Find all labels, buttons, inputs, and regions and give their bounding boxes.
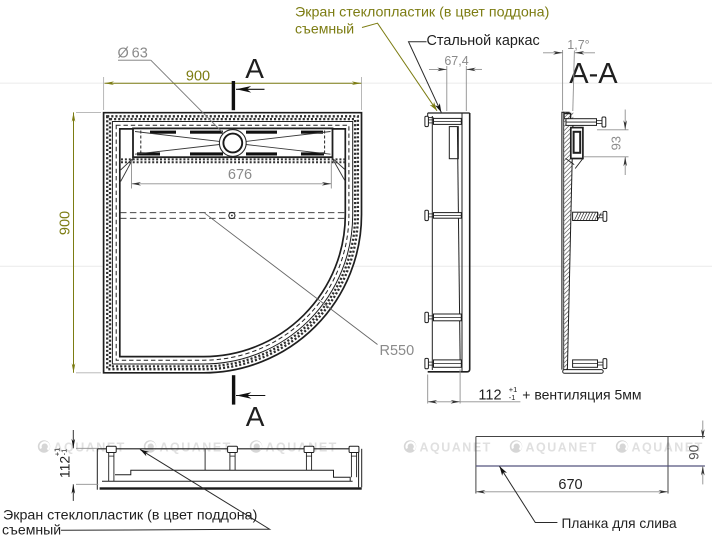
svg-text:Планка для слива: Планка для слива	[562, 516, 677, 531]
svg-text:900: 900	[186, 68, 210, 84]
svg-text:+ вентиляция 5мм: + вентиляция 5мм	[522, 387, 641, 403]
svg-text:90: 90	[686, 445, 701, 460]
svg-text:1,7°: 1,7°	[567, 38, 589, 52]
svg-text:съемный: съемный	[2, 522, 61, 536]
svg-text:AQUANET: AQUANET	[420, 441, 492, 455]
svg-text:-1: -1	[59, 449, 68, 456]
svg-text:A: A	[246, 401, 265, 432]
svg-text:Стальной каркас: Стальной каркас	[427, 33, 540, 49]
svg-text:112: 112	[478, 388, 501, 404]
svg-text:900: 900	[58, 211, 74, 235]
svg-text:676: 676	[228, 167, 252, 183]
svg-text:93: 93	[609, 136, 624, 150]
svg-text:AQUANET: AQUANET	[266, 441, 338, 455]
svg-text:Ø 63: Ø 63	[118, 46, 148, 62]
svg-text:AQUANET: AQUANET	[526, 441, 598, 455]
svg-text:Экран стеклопластик (в цвет по: Экран стеклопластик (в цвет поддона)	[295, 5, 549, 21]
svg-text:A: A	[245, 53, 264, 84]
svg-text:112: 112	[57, 456, 73, 479]
svg-text:-1: -1	[509, 393, 516, 402]
svg-text:AQUANET: AQUANET	[160, 441, 232, 455]
svg-text:67,4: 67,4	[444, 54, 468, 68]
svg-text:R550: R550	[380, 343, 415, 359]
svg-text:670: 670	[558, 477, 582, 493]
svg-text:съемный: съемный	[295, 21, 354, 37]
svg-text:A-A: A-A	[569, 58, 618, 90]
